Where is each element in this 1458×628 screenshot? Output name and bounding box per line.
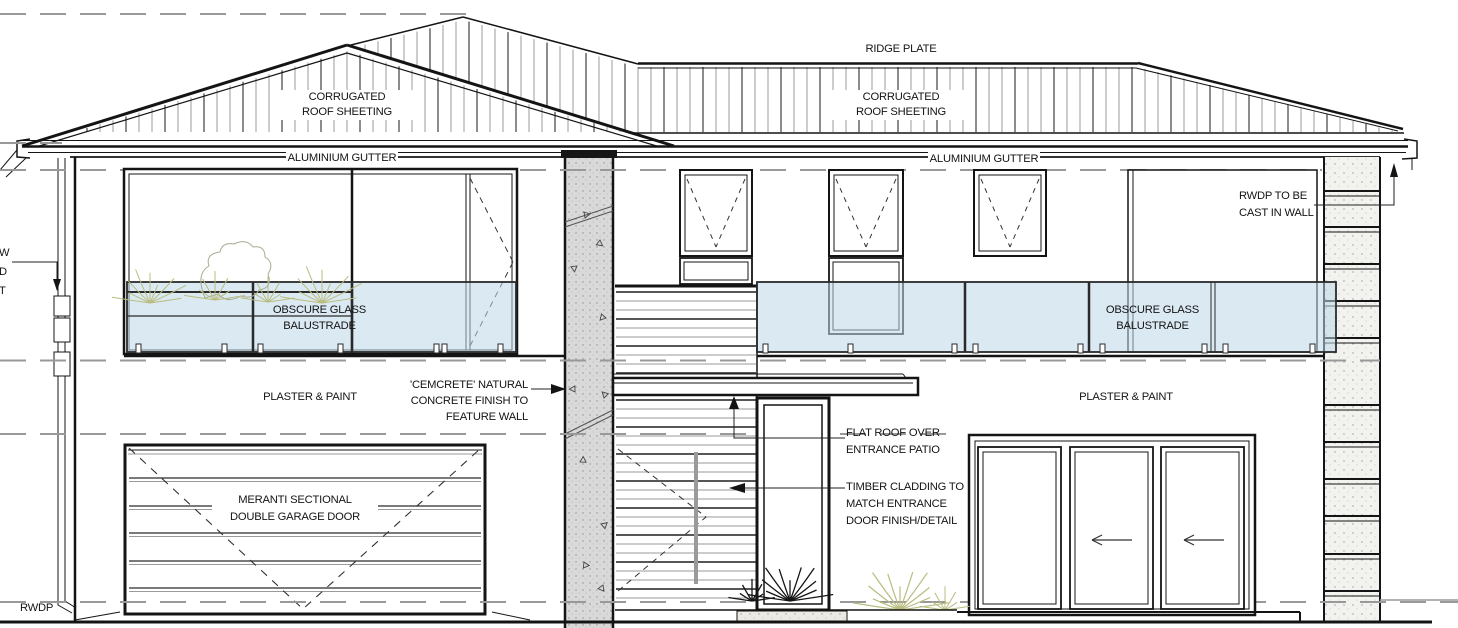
rwdp-arrow <box>1390 163 1398 177</box>
label-left-edge-cutoff: W D T <box>0 244 13 301</box>
label-plaster-paint-left: PLASTER & PAINT <box>240 390 380 405</box>
gutter-left-end <box>17 139 30 158</box>
timber-cladding-wall <box>615 283 757 605</box>
stone-pier <box>1324 157 1380 621</box>
label-rwdp-cast-in-wall: RWDP TO BE CAST IN WALL <box>1239 188 1323 222</box>
downpipe-coupling <box>54 352 70 376</box>
label-timber-cladding: TIMBER CLADDING TO MATCH ENTRANCE DOOR F… <box>846 479 976 530</box>
label-obscure-glass-right: OBSCURE GLASS BALUSTRADE <box>1090 302 1215 334</box>
awning-window-1 <box>680 170 752 284</box>
concrete-feature-wall <box>561 150 617 628</box>
elevation-linework <box>0 0 1458 628</box>
label-flat-roof-patio: FLAT ROOF OVER ENTRANCE PATIO <box>846 425 966 459</box>
elevation-drawing-sheet: RIDGE PLATE CORRUGATED ROOF SHEETING COR… <box>0 0 1458 628</box>
entrance-flat-roof-slab <box>613 374 918 395</box>
label-corrugated-roof-left: CORRUGATED ROOF SHEETING <box>277 90 417 120</box>
gutter-right-end <box>1402 139 1417 159</box>
label-plaster-paint-right: PLASTER & PAINT <box>1056 390 1196 405</box>
entrance-door-handle <box>694 452 698 584</box>
sliding-door <box>969 435 1255 615</box>
entrance-door <box>757 398 829 610</box>
awning-window-3 <box>974 170 1046 256</box>
label-obscure-glass-left: OBSCURE GLASS BALUSTRADE <box>257 302 382 334</box>
glass-balustrade-right <box>757 282 1336 352</box>
label-corrugated-roof-right: CORRUGATED ROOF SHEETING <box>831 90 971 120</box>
downpipe-coupling <box>54 296 70 316</box>
label-garage-door: MERANTI SECTIONAL DOUBLE GARAGE DOOR <box>212 492 378 526</box>
label-aluminium-gutter-left: ALUMINIUM GUTTER <box>286 151 398 166</box>
label-ridge-plate: RIDGE PLATE <box>836 42 966 57</box>
concrete-wall-cap <box>561 150 617 158</box>
label-rwdp: RWDP <box>20 601 62 616</box>
label-cemcrete-feature-wall: 'CEMCRETE' NATURAL CONCRETE FINISH TO FE… <box>402 377 528 425</box>
garage-door <box>125 445 485 614</box>
downpipe-coupling <box>54 318 70 342</box>
label-aluminium-gutter-right: ALUMINIUM GUTTER <box>928 152 1040 167</box>
left-cutoff-arrow <box>53 279 61 291</box>
